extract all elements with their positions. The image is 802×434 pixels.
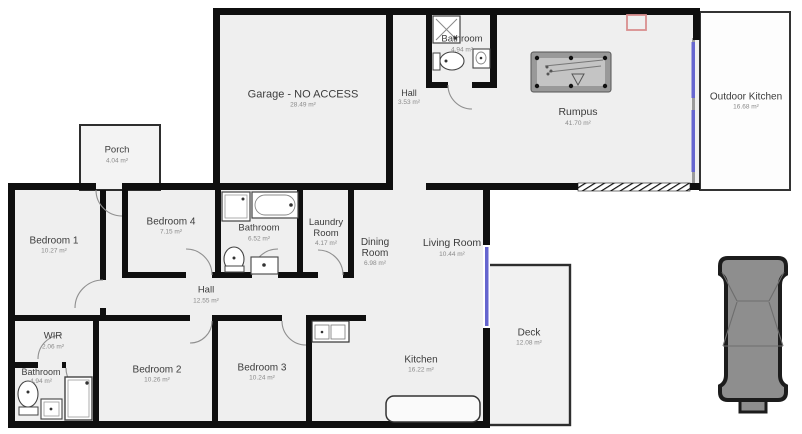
window-marker-icon [692,42,696,98]
deck-outline [488,265,570,425]
car-icon [720,258,786,412]
kitchen-island-icon [386,396,480,422]
pool-table-icon [531,52,611,92]
sink-icon [222,192,250,221]
toilet-icon [18,381,38,407]
rumpus-hatched-window [578,183,690,191]
window-marker-icon [485,247,489,326]
porch-outline [80,125,160,190]
floor-plan-svg [0,0,802,434]
window-marker-icon [692,110,696,172]
living-window-wall [483,245,490,328]
floor-plan-canvas: Garage - NO ACCESS28.49 m²Hall3.53 m²Bat… [0,0,802,434]
toilet-icon [433,53,440,70]
outdoor-kitchen-outline [700,12,790,190]
rumpus-window-wall [692,38,696,185]
